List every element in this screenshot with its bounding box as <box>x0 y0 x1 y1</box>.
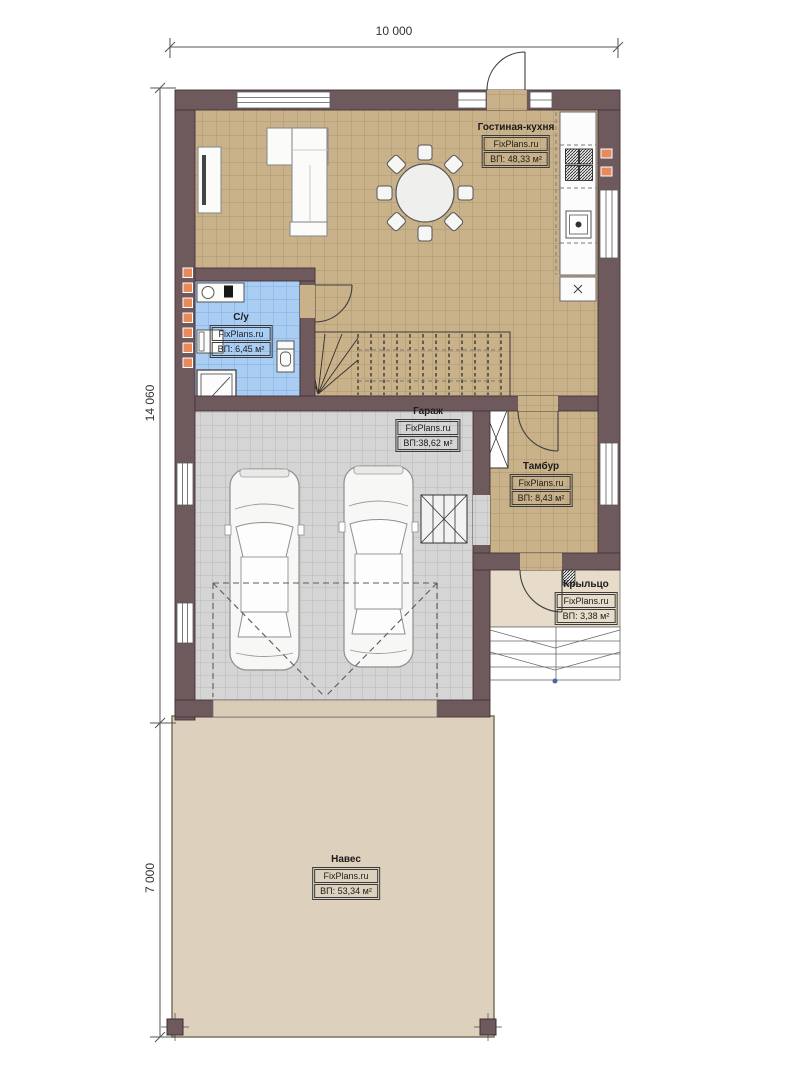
vent-icon <box>183 268 193 278</box>
room-area: ВП: 48,33 м² <box>484 152 548 166</box>
window-right-kitchen <box>600 190 618 258</box>
tambur-door-opening <box>518 396 558 411</box>
kitchen-counter <box>560 112 596 275</box>
room-label-tambur: Тамбур FixPlans.ru ВП: 8,43 м² <box>510 461 573 507</box>
kitchen-sink <box>566 211 591 238</box>
vent-icon <box>601 149 612 158</box>
room-info-box: FixPlans.ru ВП: 6,45 м² <box>210 325 273 358</box>
room-label-canopy: Навес FixPlans.ru ВП: 53,34 м² <box>312 854 380 900</box>
room-label-living-kitchen: Гостиная-кухня FixPlans.ru ВП: 48,33 м² <box>478 122 555 168</box>
entry-door-opening <box>487 90 527 110</box>
vent-icon <box>183 283 193 293</box>
vent-icon <box>183 343 193 353</box>
fixplans-brand: FixPlans.ru <box>397 421 458 435</box>
vent-icon <box>183 358 193 368</box>
hob-unit <box>560 277 596 301</box>
garage-door-opening <box>213 700 437 717</box>
vent-icon <box>183 313 193 323</box>
porch-steps <box>490 627 620 684</box>
wall-bathroom-top <box>195 268 315 281</box>
dining-set <box>377 145 473 241</box>
dining-chair <box>418 145 432 160</box>
room-info-box: FixPlans.ru ВП: 3,38 м² <box>555 592 618 625</box>
window-left-garage-1 <box>177 463 193 505</box>
floor-plan-page: 10 000 14 060 7 000 Гостиная-кухня FixPl… <box>0 0 792 1080</box>
room-area: ВП: 6,45 м² <box>212 342 271 356</box>
fixplans-brand: FixPlans.ru <box>484 137 548 151</box>
bathroom-sink-counter <box>197 283 244 302</box>
room-info-box: FixPlans.ru ВП: 8,43 м² <box>510 474 573 507</box>
dimension-line-top <box>170 38 618 58</box>
room-info-box: FixPlans.ru ВП: 53,34 м² <box>312 867 380 900</box>
tv-screen <box>202 155 206 205</box>
step-marker <box>553 679 558 684</box>
vent-icon <box>183 298 193 308</box>
dimension-left-upper-label: 14 060 <box>143 385 157 422</box>
fixplans-brand: FixPlans.ru <box>212 327 271 341</box>
room-area: ВП: 3,38 м² <box>557 609 616 623</box>
room-info-box: FixPlans.ru ВП:38,62 м² <box>395 419 460 452</box>
post <box>167 1019 183 1035</box>
dimension-left-lower-label: 7 000 <box>143 863 157 893</box>
window-top-right-2 <box>530 92 552 108</box>
window-right-tambur <box>600 443 618 505</box>
post <box>480 1019 496 1035</box>
room-name: С/у <box>210 312 273 323</box>
window-top-right-1 <box>458 92 486 108</box>
floor-plan-drawing <box>0 0 792 1080</box>
vent-icon <box>601 167 612 176</box>
room-name: Гараж <box>395 406 460 417</box>
room-name: Крыльцо <box>555 579 618 590</box>
window-left-garage-2 <box>177 603 193 643</box>
fixplans-brand: FixPlans.ru <box>512 476 571 490</box>
garage-steps <box>421 495 467 543</box>
room-label-porch: Крыльцо FixPlans.ru ВП: 3,38 м² <box>555 579 618 625</box>
room-area: ВП:38,62 м² <box>397 436 458 450</box>
room-info-box: FixPlans.ru ВП: 48,33 м² <box>482 135 550 168</box>
bathroom-door-opening <box>300 285 315 318</box>
room-label-garage: Гараж FixPlans.ru ВП:38,62 м² <box>395 406 460 452</box>
car <box>225 469 304 670</box>
window-top-living <box>237 92 330 108</box>
room-name: Тамбур <box>510 461 573 472</box>
dining-chair <box>377 186 392 200</box>
entry-door <box>487 52 525 90</box>
car <box>339 466 418 667</box>
dining-chair <box>418 226 432 241</box>
room-label-bathroom: С/у FixPlans.ru ВП: 6,45 м² <box>210 312 273 358</box>
garage-tambur-opening <box>473 495 490 545</box>
room-name: Гостиная-кухня <box>478 122 555 133</box>
tv-stand <box>198 147 221 213</box>
room-area: ВП: 8,43 м² <box>512 491 571 505</box>
kitchen <box>556 112 596 301</box>
fixplans-brand: FixPlans.ru <box>557 594 616 608</box>
toilet <box>277 341 294 372</box>
room-name: Навес <box>312 854 380 865</box>
dining-table <box>396 164 454 222</box>
fixplans-brand: FixPlans.ru <box>314 869 378 883</box>
dining-chair <box>458 186 473 200</box>
porch-door-opening <box>520 553 562 570</box>
dimension-top-label: 10 000 <box>376 24 413 38</box>
vent-icon <box>183 328 193 338</box>
room-area: ВП: 53,34 м² <box>314 884 378 898</box>
